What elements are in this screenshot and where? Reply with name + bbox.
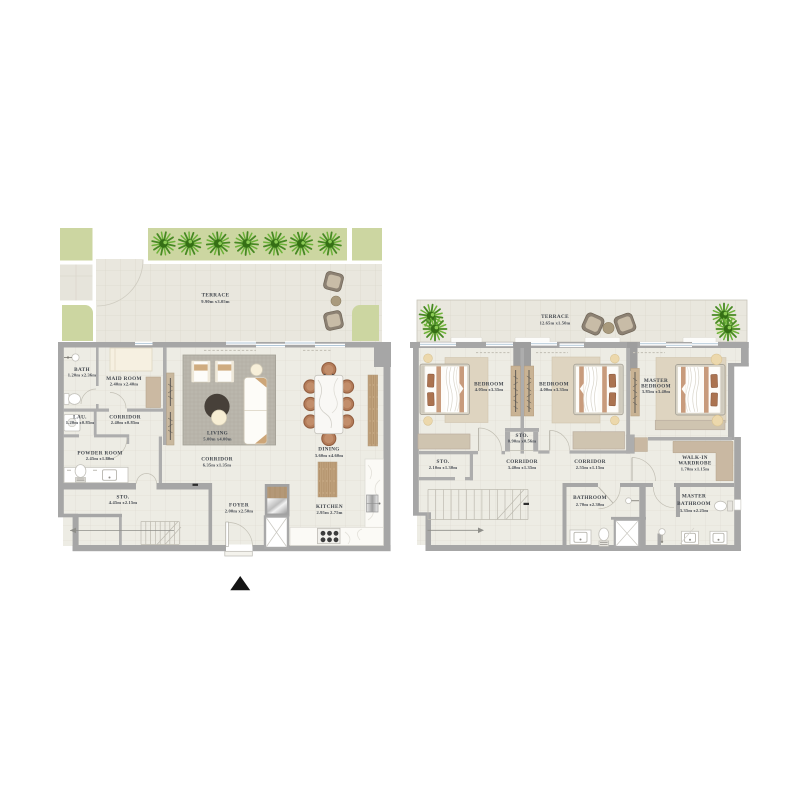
svg-text:2.95m 2.75m: 2.95m 2.75m	[316, 510, 342, 515]
svg-text:3.60m x4.60m: 3.60m x4.60m	[315, 453, 344, 458]
svg-text:3.40m x1.35m: 3.40m x1.35m	[508, 465, 537, 470]
svg-text:9.90m x3.05m: 9.90m x3.05m	[201, 299, 230, 304]
svg-text:12.65m x1.50m: 12.65m x1.50m	[540, 321, 571, 326]
svg-text:2.40m x0.85m: 2.40m x0.85m	[111, 420, 140, 425]
svg-text:2.40m x2.40m: 2.40m x2.40m	[110, 382, 139, 387]
svg-text:2.45m x1.80m: 2.45m x1.80m	[86, 456, 115, 461]
svg-text:6.35m x1.35m: 6.35m x1.35m	[203, 463, 232, 468]
svg-text:2.70m x2.30m: 2.70m x2.30m	[576, 502, 605, 507]
svg-text:5.00m x4.00m: 5.00m x4.00m	[203, 437, 232, 442]
svg-text:4.00m x3.35m: 4.00m x3.35m	[540, 387, 569, 392]
svg-text:3.85m x3.40m: 3.85m x3.40m	[642, 389, 671, 394]
svg-text:MASTER: MASTER	[682, 494, 706, 500]
svg-text:0.90m x0.56m: 0.90m x0.56m	[508, 439, 537, 444]
svg-text:1.20m x0.85m: 1.20m x0.85m	[66, 420, 95, 425]
svg-text:3.35m x2.25m: 3.35m x2.25m	[680, 508, 709, 513]
svg-text:2.00m x2.50m: 2.00m x2.50m	[225, 509, 254, 514]
svg-text:4.45m x2.15m: 4.45m x2.15m	[109, 500, 138, 505]
svg-text:BATHROOM: BATHROOM	[677, 501, 711, 507]
svg-text:DINING: DINING	[318, 447, 339, 453]
svg-text:BATHROOM: BATHROOM	[573, 495, 607, 501]
svg-text:1.70m x1.15m: 1.70m x1.15m	[681, 466, 710, 471]
svg-text:TERRACE: TERRACE	[541, 314, 569, 320]
svg-text:TERRACE: TERRACE	[202, 293, 230, 299]
svg-text:4.05m x3.35m: 4.05m x3.35m	[475, 387, 504, 392]
svg-text:2.55m x1.15m: 2.55m x1.15m	[576, 465, 605, 470]
svg-text:2.10m x1.30m: 2.10m x1.30m	[429, 465, 458, 470]
svg-text:1.20m x2.36m: 1.20m x2.36m	[68, 373, 97, 378]
